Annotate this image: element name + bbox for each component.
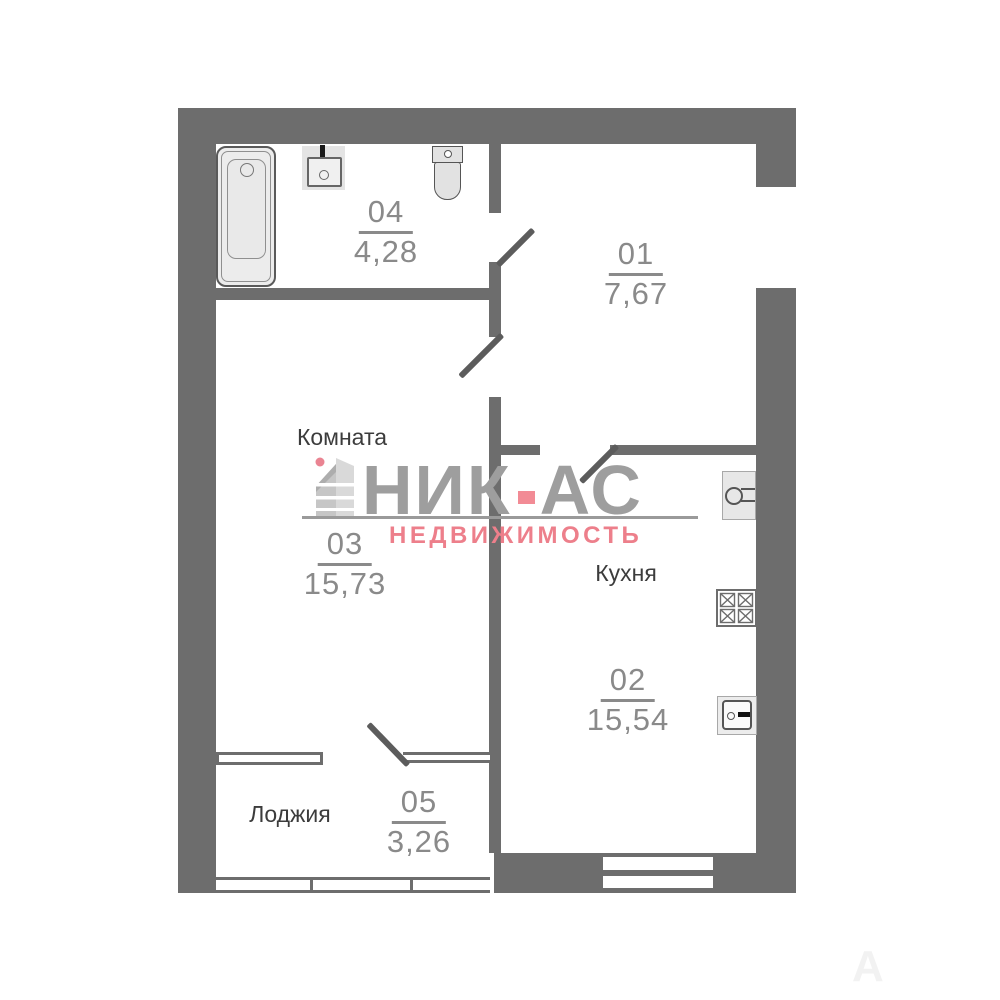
room-number: 01 (604, 238, 668, 269)
door-leaf-bathroom (496, 228, 536, 268)
room-number: 05 (387, 786, 451, 817)
logo-tagline: НЕДВИЖИМОСТЬ (389, 522, 642, 550)
room-tag-kitchen: 02 15,54 (587, 664, 670, 735)
wall-center-upper (489, 144, 501, 213)
wall-center-middle (489, 262, 501, 337)
wall-top (178, 108, 796, 144)
room-tag-hallway: 01 7,67 (604, 238, 668, 309)
toilet-icon (432, 146, 463, 200)
room-tag-living: 03 15,73 (304, 528, 387, 599)
stove-icon (716, 589, 757, 627)
washbasin-icon (302, 146, 345, 190)
room-label-kitchen: Кухня (595, 560, 657, 587)
logo-building-icon (306, 452, 364, 520)
wall-kitchen-bottom (494, 853, 796, 893)
room-area: 4,28 (354, 236, 418, 267)
room-number: 03 (304, 528, 387, 559)
room-number: 02 (587, 664, 670, 695)
loggia-glazing (216, 877, 490, 893)
kitchen-window-pane (603, 876, 713, 888)
room-label-loggia: Лоджия (249, 801, 331, 828)
floor-plan: 04 4,28 01 7,67 03 15,73 02 15,54 05 3,2… (0, 0, 1000, 1000)
room-area: 15,54 (587, 704, 670, 735)
kitchen-window-pane (603, 857, 713, 870)
wall-right-upper (756, 108, 796, 187)
room-area: 7,67 (604, 278, 668, 309)
loggia-glazing-mullion (410, 880, 413, 890)
logo-accent-square (518, 491, 535, 504)
logo-underline (302, 516, 698, 519)
bathtub-icon (216, 146, 276, 287)
door-leaf-living (458, 333, 504, 379)
loggia-window (216, 752, 323, 765)
room-number: 04 (354, 196, 418, 227)
washing-machine-icon (717, 696, 757, 735)
toilet-bowl (434, 162, 461, 200)
appliance-handle (738, 712, 750, 717)
wall-left (178, 108, 216, 893)
loggia-partition (403, 752, 490, 763)
faint-watermark: А А (852, 942, 1000, 992)
room-label-living: Комната (297, 424, 387, 451)
wall-right-lower (756, 288, 796, 893)
appliance-knob (727, 712, 735, 720)
nikas-logo-text: НИК АС (362, 455, 643, 525)
logo-text-left: НИК (362, 455, 512, 525)
loggia-glazing-mullion (310, 880, 313, 890)
logo-text-right: АС (540, 455, 643, 525)
bathtub-drain (240, 163, 254, 177)
washbasin-drain (319, 170, 329, 180)
wall-bathroom-bottom (216, 288, 489, 300)
kitchen-sink-tap (741, 488, 755, 502)
kitchen-sink-icon (722, 471, 756, 520)
room-area: 3,26 (387, 826, 451, 857)
toilet-button (444, 150, 452, 158)
room-tag-loggia: 05 3,26 (387, 786, 451, 857)
room-area: 15,73 (304, 568, 387, 599)
room-tag-bathroom: 04 4,28 (354, 196, 418, 267)
door-leaf-loggia (366, 722, 410, 767)
